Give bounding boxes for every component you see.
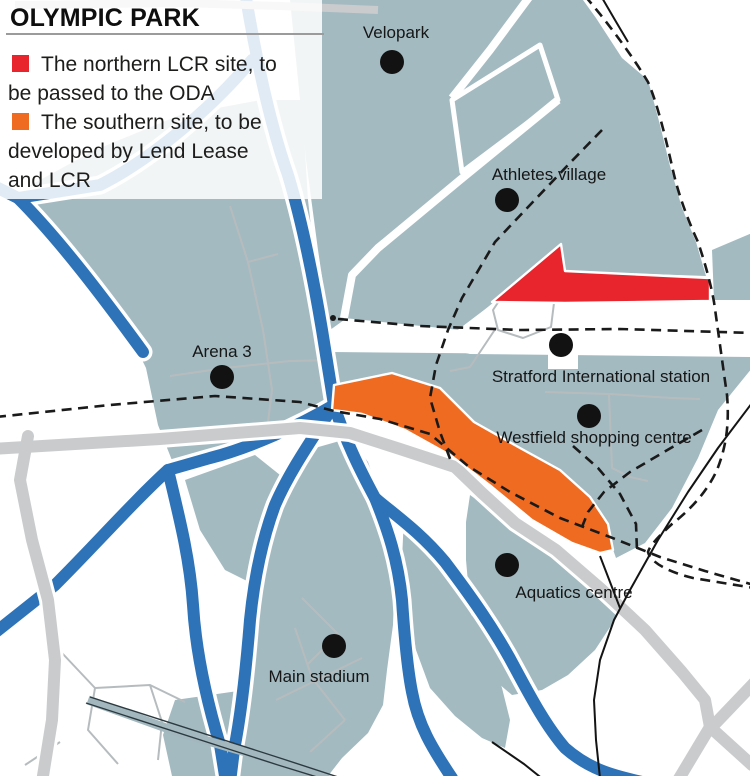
map-label-arena-3: Arena 3 xyxy=(192,342,252,361)
legend-swatch-northern-icon xyxy=(12,55,29,72)
dashed-line-startpoint xyxy=(330,315,336,321)
marker-athletes-village xyxy=(495,188,519,212)
marker-main-stadium xyxy=(322,634,346,658)
marker-arena-3 xyxy=(210,365,234,389)
page-title: OLYMPIC PARK xyxy=(10,4,200,32)
map-label-velopark: Velopark xyxy=(363,23,430,42)
map-label-aquatics-centre: Aquatics centre xyxy=(515,583,632,602)
marker-velopark xyxy=(380,50,404,74)
map-label-westfield: Westfield shopping centre xyxy=(496,428,691,447)
map-label-main-stadium: Main stadium xyxy=(268,667,369,686)
marker-aquatics-centre xyxy=(495,553,519,577)
legend: The northern LCR site, to be passed to t… xyxy=(8,50,280,195)
map-label-stratford-international: Stratford International station xyxy=(492,367,710,386)
legend-item-southern: The southern site, to be developed by Le… xyxy=(8,108,280,195)
legend-item-northern: The northern LCR site, to be passed to t… xyxy=(8,50,280,108)
map-label-athletes-village: Athletes village xyxy=(492,165,606,184)
region-northeast-fragment xyxy=(712,233,750,300)
olympic-park-map: Velopark Athletes village Arena 3 Stratf… xyxy=(0,0,750,776)
legend-item-northern-label: The northern LCR site, to be passed to t… xyxy=(8,53,277,105)
title-block: OLYMPIC PARK xyxy=(10,4,325,33)
marker-westfield xyxy=(577,404,601,428)
marker-stratford-international xyxy=(549,333,573,357)
legend-swatch-southern-icon xyxy=(12,113,29,130)
title-rule xyxy=(6,33,324,35)
legend-item-southern-label: The southern site, to be developed by Le… xyxy=(8,111,262,192)
